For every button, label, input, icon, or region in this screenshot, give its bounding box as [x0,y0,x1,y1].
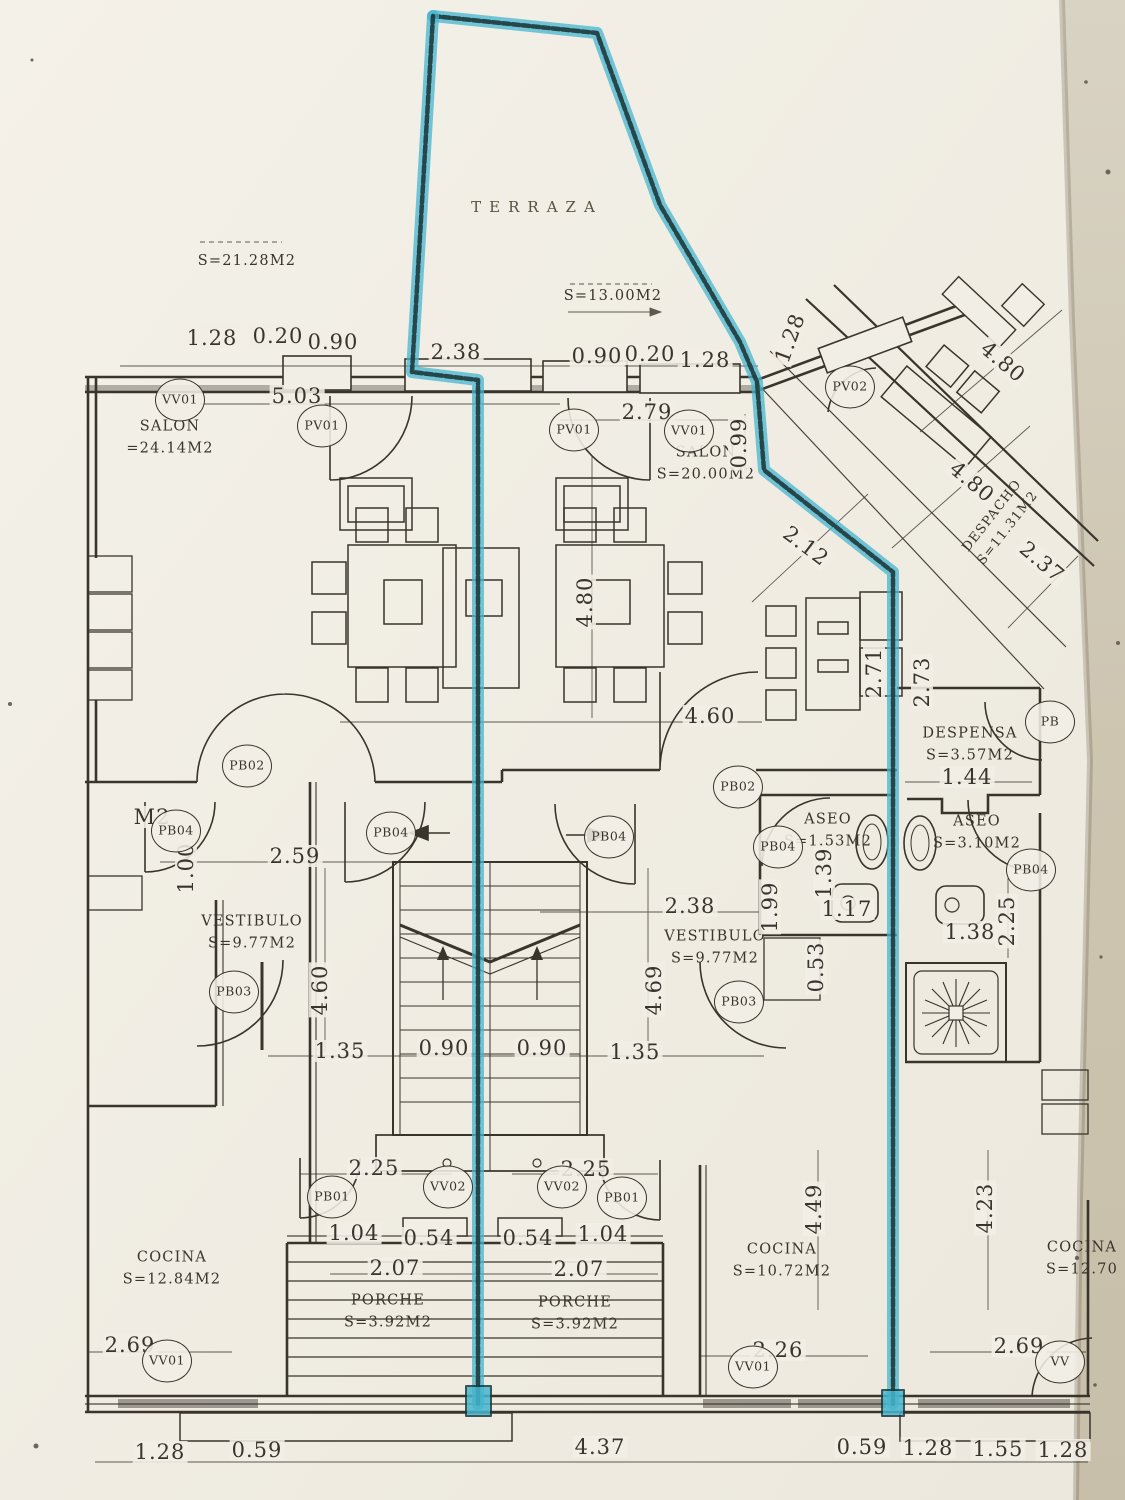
dimension-label: 2.25 [347,1157,402,1179]
room-name: TERRAZA [471,196,603,219]
dimension-label: 1.04 [576,1223,631,1245]
dimension-label: 1.99 [759,880,781,935]
dimension-label: 1.28 [770,308,809,367]
dimension-label: 0.54 [402,1227,457,1249]
door-window-code: PB04 [584,816,634,859]
dimension-label: 2.07 [368,1257,423,1279]
dimension-label: 1.28 [185,327,240,349]
dimension-label: 1.28 [133,1441,188,1463]
room-area: S=21.28M2 [198,251,296,273]
room-name: PORCHE [531,1292,619,1314]
room-label: VESTIBULOS=9.77M2 [201,911,303,955]
room-label: COCINAS=10.72M2 [733,1239,831,1283]
door-window-code: PB04 [1006,849,1056,892]
dimension-label: 0.90 [570,345,625,367]
room-label: ASEOS=3.10M2 [933,811,1021,855]
dimension-label: 4.23 [974,1181,996,1236]
door-window-code: PB02 [222,745,272,788]
room-label: S=13.00M2 [564,286,662,308]
dimension-label: 1.44 [940,766,995,788]
dimension-label: 0.59 [230,1439,285,1461]
dimension-label: 4.80 [574,575,596,630]
door-window-code: PB04 [151,810,201,853]
dimension-label: 0.90 [417,1037,472,1059]
room-name: ASEO [933,811,1021,833]
room-name: COCINA [123,1247,221,1269]
room-label: DESPENSAS=3.57M2 [922,723,1017,767]
floor-plan-photo: TERRAZAS=21.28M2S=13.00M2SALON=24.14M2SA… [0,0,1125,1500]
room-label: COCINAS=12.70 [1046,1237,1118,1281]
room-name: COCINA [1046,1237,1118,1259]
dimension-label: 4.69 [643,963,665,1018]
room-label: PORCHES=3.92M2 [344,1290,432,1334]
dimension-label: 1.38 [943,921,998,943]
dimension-label: 1.28 [1036,1439,1091,1461]
door-window-code: VV01 [155,379,205,422]
terrace-label: TERRAZA [471,196,603,219]
room-label: PORCHES=3.92M2 [531,1292,619,1336]
door-window-code: VV01 [142,1340,192,1383]
dimension-label: 0.99 [728,416,750,471]
door-window-code: VV01 [728,1346,778,1389]
door-window-code: PB04 [753,826,803,869]
room-name: VESTIBULO [664,926,766,948]
door-window-code: PV01 [549,409,599,452]
door-window-code: VV01 [664,410,714,453]
dimension-label: 2.37 [1014,536,1070,588]
dimension-label: 2.71 [863,646,885,701]
dimension-label: 1.55 [971,1438,1026,1460]
door-window-code: PV02 [825,366,875,409]
room-label: S=21.28M2 [198,251,296,273]
room-name: PORCHE [344,1290,432,1312]
dimension-label: 1.35 [313,1040,368,1062]
room-area: S=13.00M2 [564,286,662,308]
door-window-code: VV02 [537,1166,587,1209]
door-window-code: VV [1035,1341,1085,1384]
door-window-code: PB03 [209,971,259,1014]
dimension-label: 1.28 [901,1437,956,1459]
dimension-label: 1.28 [678,349,733,371]
room-name: DESPENSA [922,723,1017,745]
room-area: S=9.77M2 [201,933,303,955]
door-window-code: PB [1025,701,1075,744]
dimension-label: 2.25 [996,894,1018,949]
dimension-label: 2.59 [268,845,323,867]
dimension-label: 0.90 [306,331,361,353]
dimension-label: 5.03 [270,385,325,407]
dimension-label: 4.37 [573,1436,628,1458]
door-window-code: PB04 [366,812,416,855]
door-window-code: PB01 [597,1177,647,1220]
dimension-label: 0.59 [835,1436,890,1458]
label-layer: TERRAZAS=21.28M2S=13.00M2SALON=24.14M2SA… [0,0,1125,1500]
room-label: SALON=24.14M2 [126,416,213,460]
room-label: VESTIBULOS=9.77M2 [664,926,766,970]
room-label: COCINAS=12.84M2 [123,1247,221,1291]
dimension-label: 2.38 [663,895,718,917]
dimension-label: 4.80 [944,456,1000,508]
room-name: VESTIBULO [201,911,303,933]
door-window-code: PB01 [307,1176,357,1219]
dimension-label: 0.53 [805,940,827,995]
dimension-label: 4.49 [803,1182,825,1237]
room-name: COCINA [733,1239,831,1261]
room-area: S=10.72M2 [733,1261,831,1283]
dimension-label: 1.04 [327,1222,382,1244]
dimension-label: 4.60 [683,705,738,727]
dimension-label: 2.12 [777,521,834,572]
dimension-label: 0.20 [623,343,678,365]
room-area: S=3.57M2 [922,745,1017,767]
dimension-label: 4.80 [975,336,1031,388]
room-area: =24.14M2 [126,438,213,460]
door-window-code: VV02 [423,1166,473,1209]
dimension-label: 0.54 [501,1227,556,1249]
dimension-label: 1.39 [813,846,835,901]
dimension-label: 1.35 [608,1041,663,1063]
room-area: S=12.70 [1046,1259,1118,1281]
door-window-code: PB02 [713,766,763,809]
dimension-label: 0.20 [251,325,306,347]
dimension-label: 2.73 [911,655,933,710]
dimension-label: 0.90 [515,1037,570,1059]
room-area: S=3.92M2 [344,1312,432,1334]
room-name: ASEO [784,809,872,831]
room-area: S=12.84M2 [123,1269,221,1291]
dimension-label: 2.07 [552,1258,607,1280]
dimension-label: 2.38 [429,341,484,363]
room-area: S=3.10M2 [933,833,1021,855]
door-window-code: PV01 [297,405,347,448]
door-window-code: PB03 [714,981,764,1024]
room-area: S=9.77M2 [664,948,766,970]
dimension-label: 4.60 [309,963,331,1018]
room-area: S=3.92M2 [531,1314,619,1336]
dimension-label: 1.17 [820,898,875,920]
